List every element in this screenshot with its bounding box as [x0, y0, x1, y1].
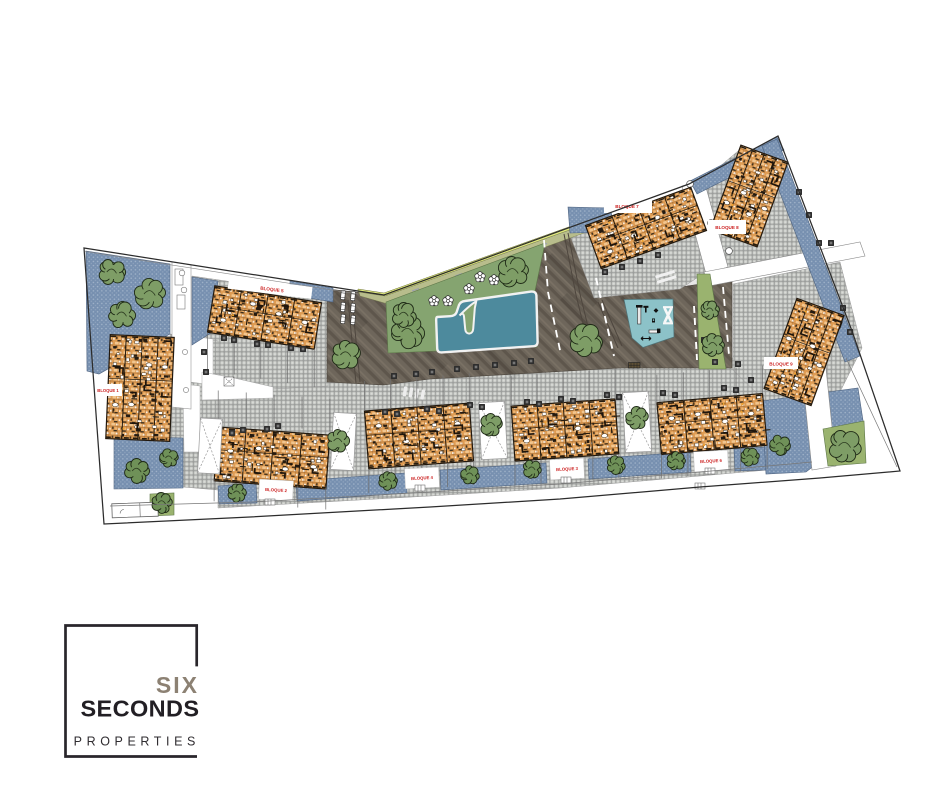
- svg-text:SIX: SIX: [156, 672, 199, 698]
- svg-text:SECONDS: SECONDS: [80, 696, 199, 722]
- svg-text:PROPERTIES: PROPERTIES: [74, 735, 200, 749]
